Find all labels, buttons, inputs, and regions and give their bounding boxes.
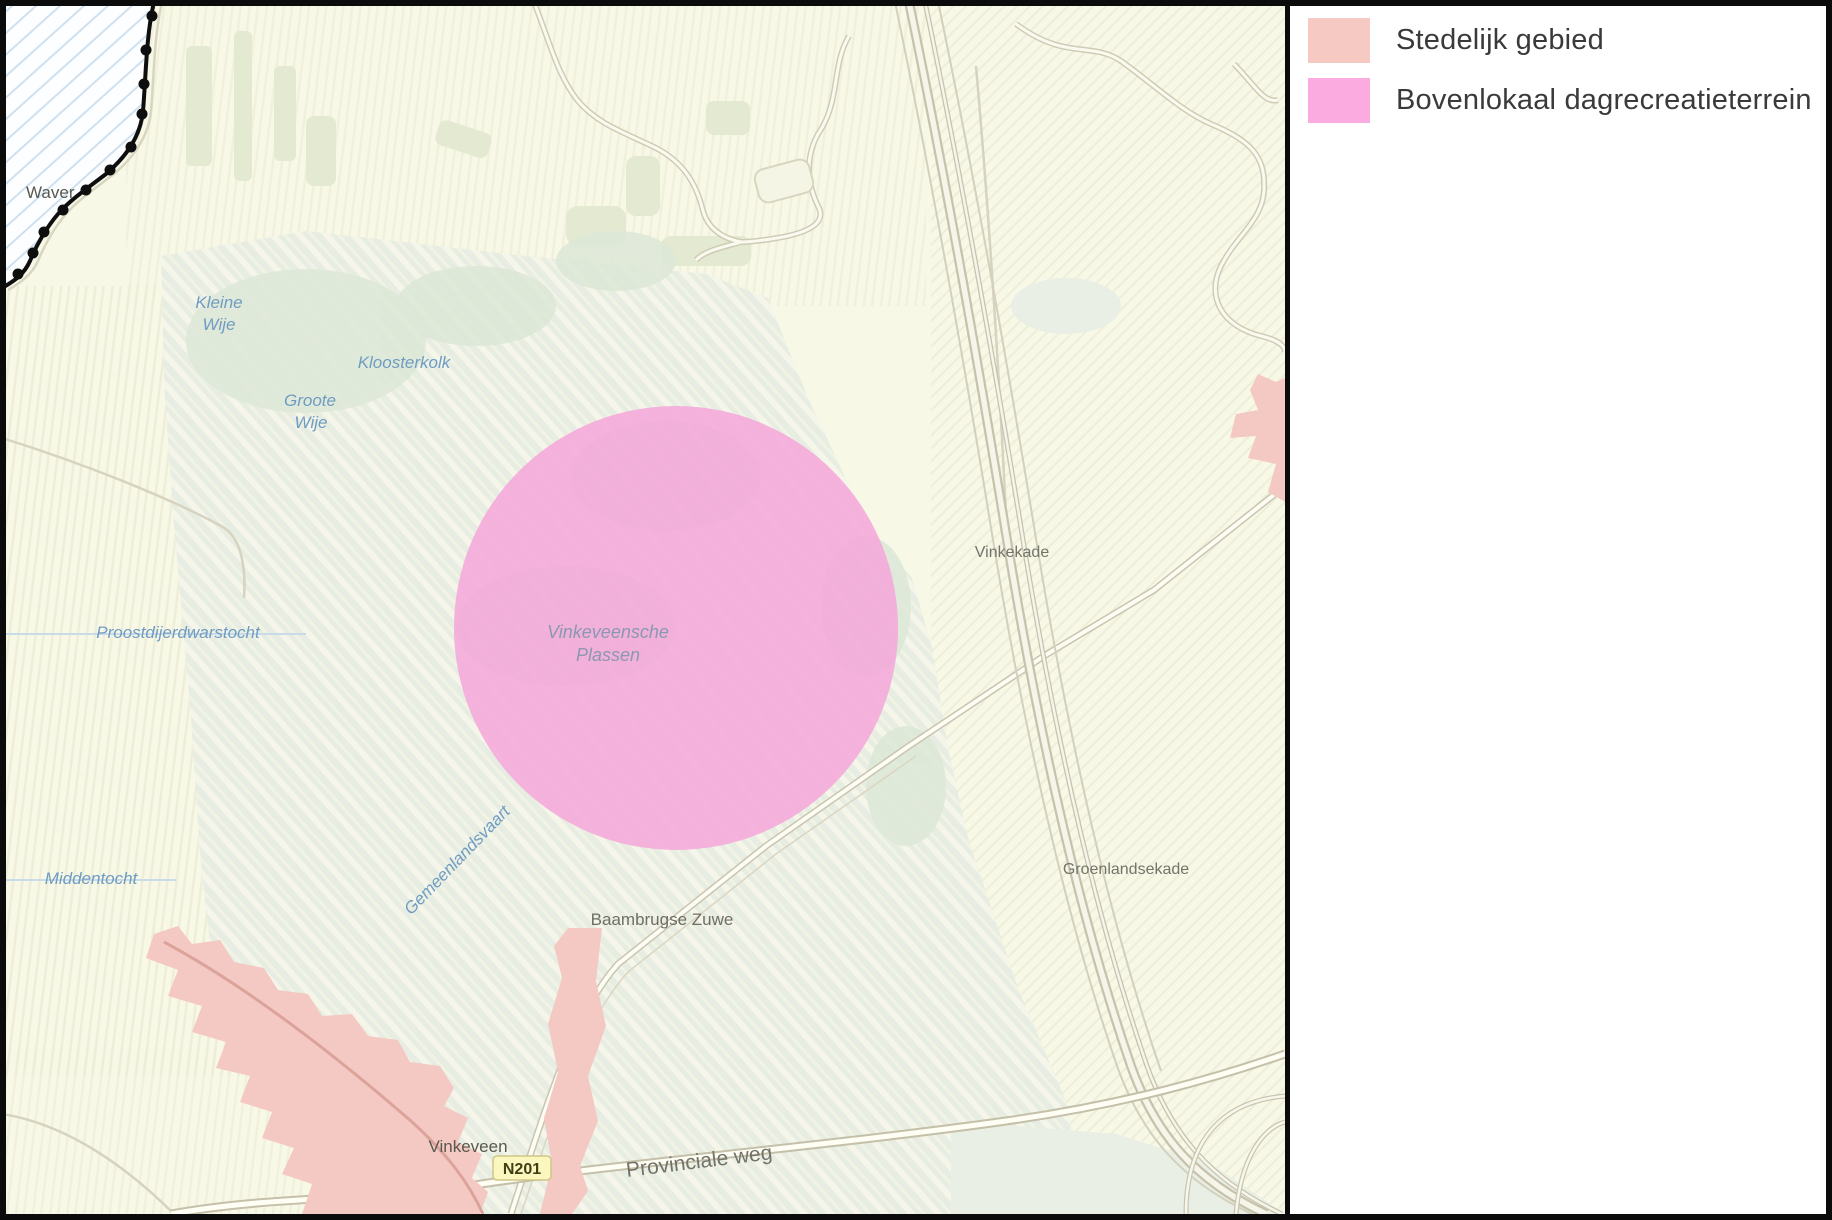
legend: Stedelijk gebied Bovenlokaal dagrecreati… xyxy=(1290,6,1826,1214)
legend-swatch-bovenlokaal-dagrecreatieterrein xyxy=(1308,78,1370,123)
legend-label-bovenlokaal-dagrecreatieterrein: Bovenlokaal dagrecreatieterrein xyxy=(1396,84,1812,117)
map-figure: Waver Kleine Wije Kloosterkolk Groote Wi… xyxy=(0,0,1832,1220)
map-canvas: Waver Kleine Wije Kloosterkolk Groote Wi… xyxy=(6,6,1290,1214)
recreation-overlay-circle xyxy=(454,406,898,850)
map-label-kloosterkolk: Kloosterkolk xyxy=(358,353,452,372)
road-badge-n201: N201 xyxy=(493,1156,551,1180)
legend-label-stedelijk-gebied: Stedelijk gebied xyxy=(1396,24,1604,57)
map-label-groote-wije-2: Wije xyxy=(295,413,328,432)
map-label-groote-wije-1: Groote xyxy=(284,391,336,410)
map-label-vinkeveensche-plassen-2: Plassen xyxy=(576,645,640,665)
green-patch-east xyxy=(1011,278,1121,334)
legend-swatch-stedelijk-gebied xyxy=(1308,18,1370,63)
map-label-waver: Waver xyxy=(26,183,75,202)
map-label-baambrugse-zuwe: Baambrugse Zuwe xyxy=(591,910,734,929)
map-label-kleine-wije-2: Wije xyxy=(203,315,236,334)
legend-item-bovenlokaal-dagrecreatieterrein: Bovenlokaal dagrecreatieterrein xyxy=(1308,78,1826,123)
road-badge-text: N201 xyxy=(503,1161,541,1178)
map-label-middentocht: Middentocht xyxy=(45,869,139,888)
map-svg: Waver Kleine Wije Kloosterkolk Groote Wi… xyxy=(6,6,1285,1214)
map-label-vinkekade: Vinkekade xyxy=(975,544,1050,561)
map-label-groenlandsekade: Groenlandsekade xyxy=(1063,861,1189,878)
map-label-vinkeveen: Vinkeveen xyxy=(428,1137,507,1156)
map-label-vinkeveensche-plassen-1: Vinkeveensche xyxy=(547,622,669,642)
legend-item-stedelijk-gebied: Stedelijk gebied xyxy=(1308,18,1826,63)
map-label-kleine-wije-1: Kleine xyxy=(195,293,242,312)
map-label-proostdijerdwarstocht: Proostdijerdwarstocht xyxy=(96,623,261,642)
